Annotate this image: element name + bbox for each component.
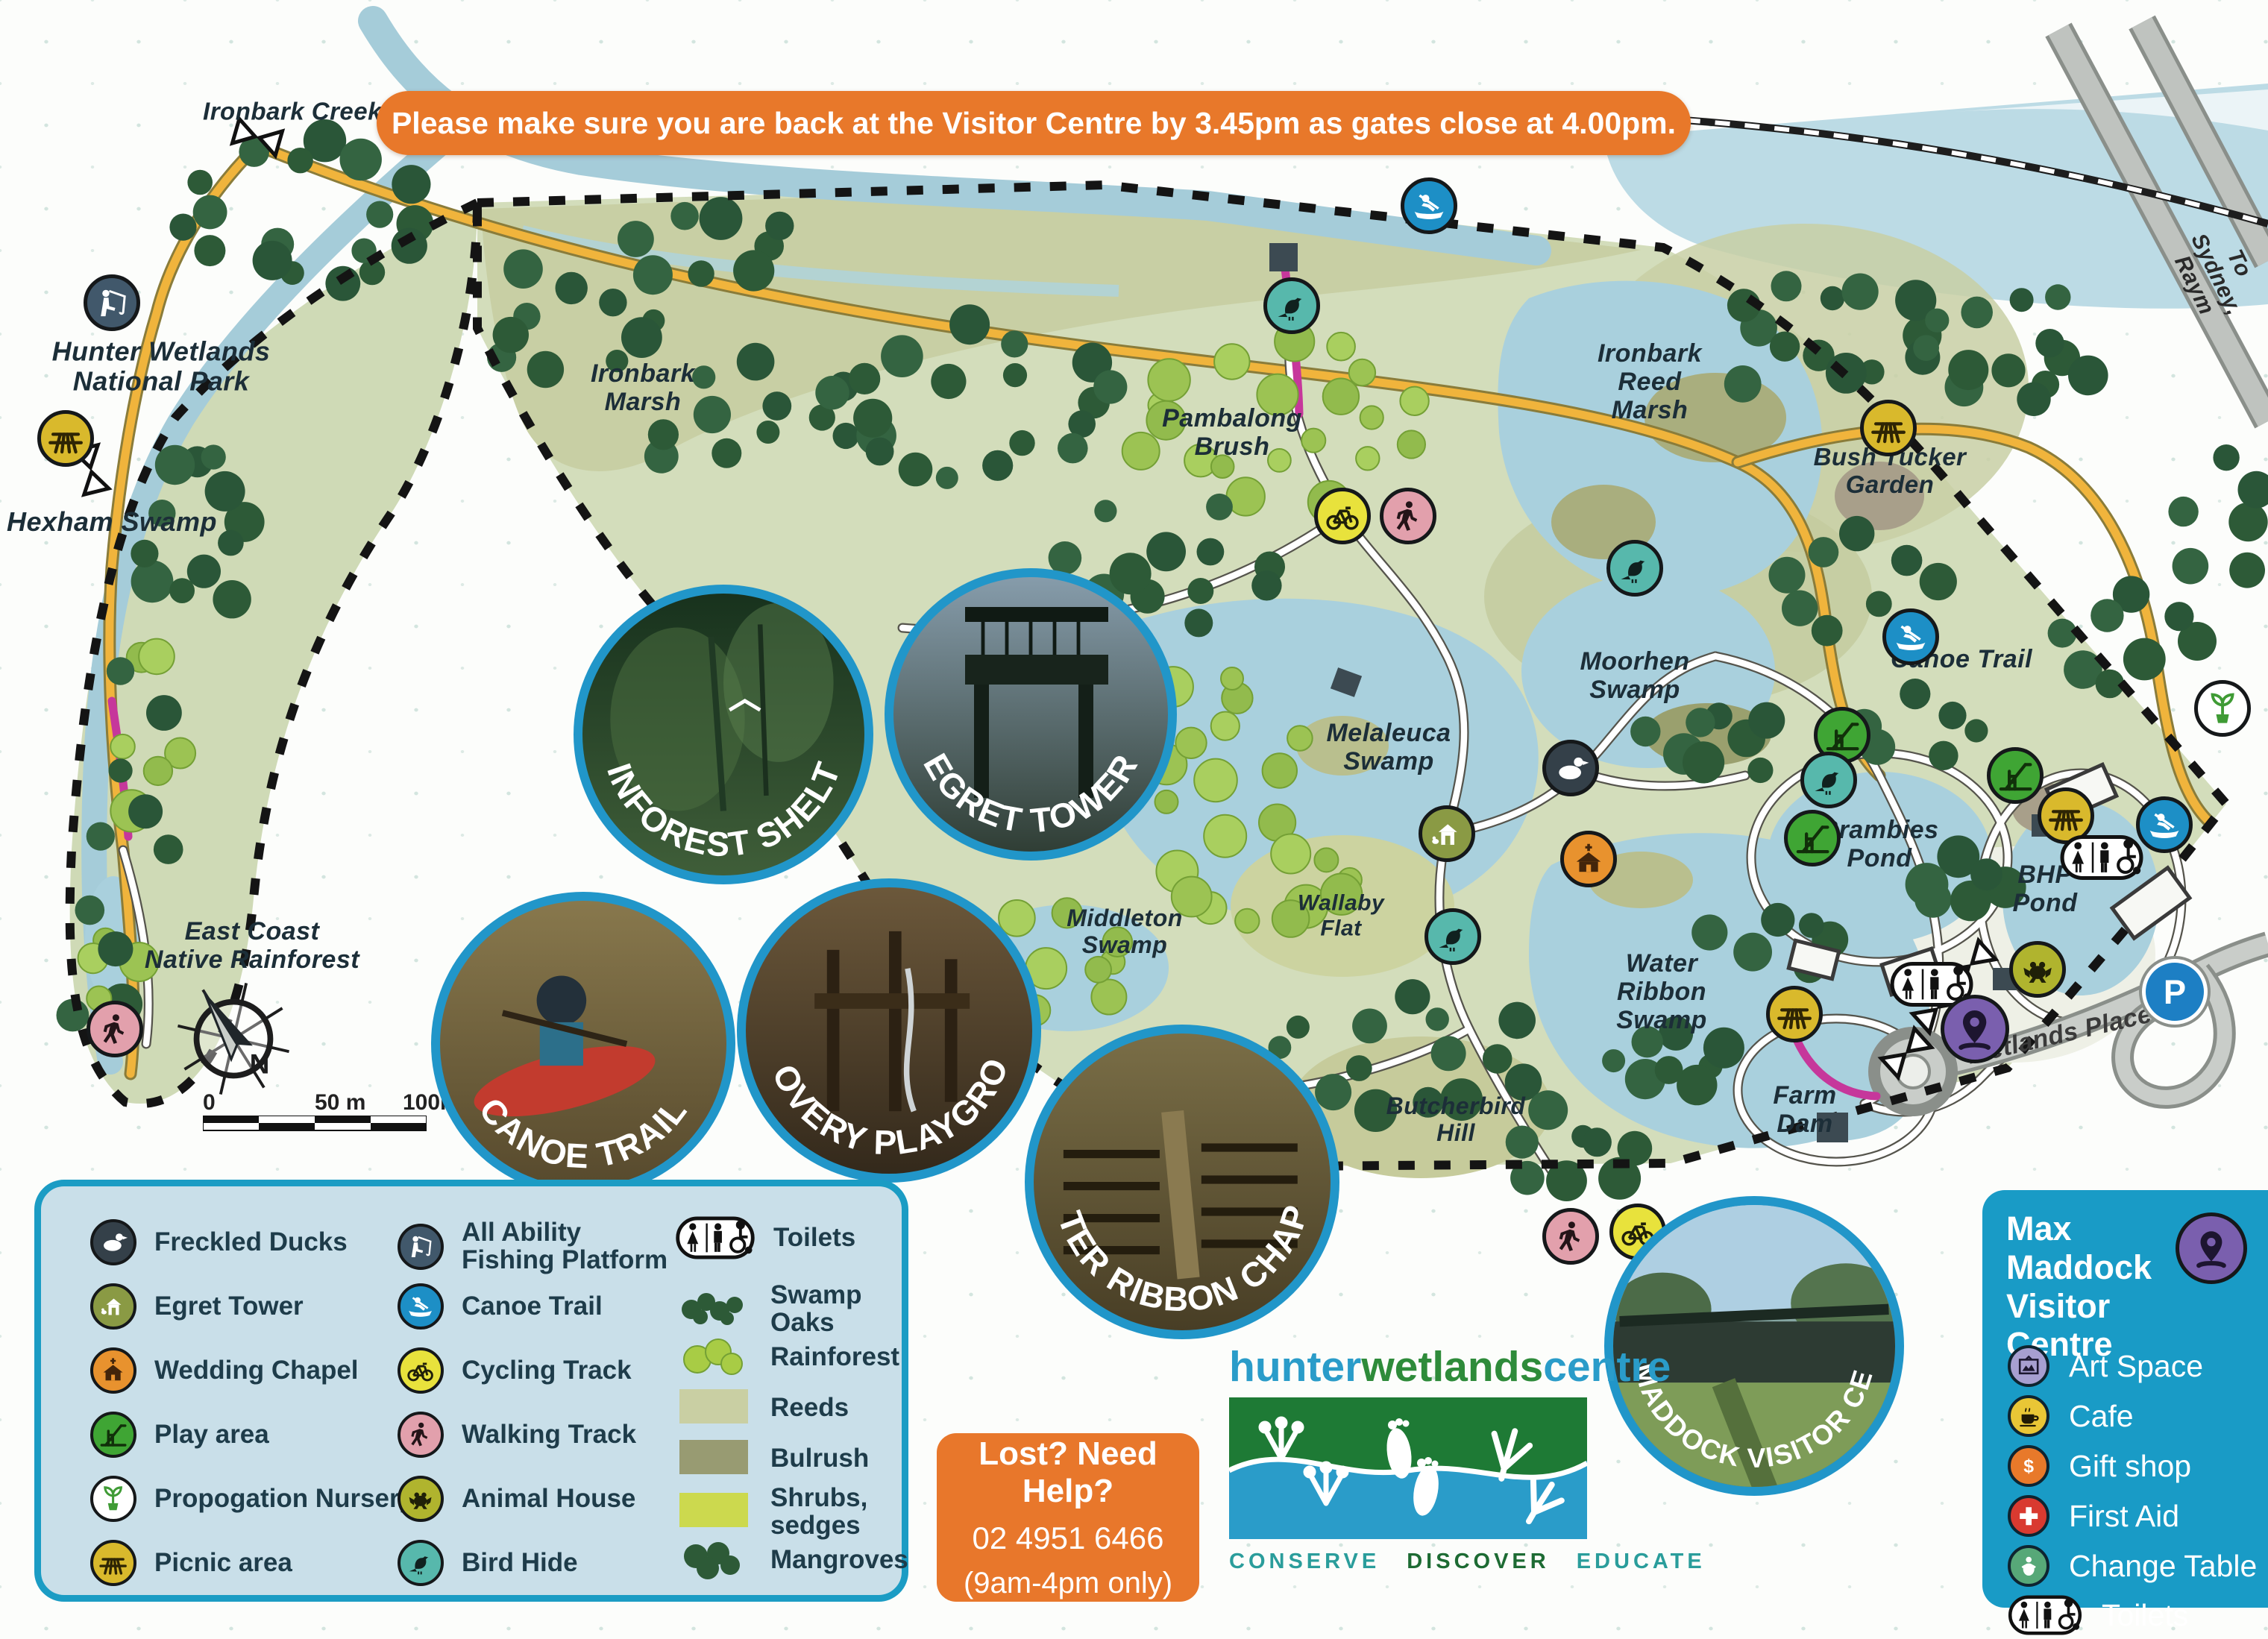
cycling-icon	[1314, 488, 1371, 544]
toilets-icon	[2008, 1595, 2082, 1635]
help-phone: 02 4951 6466	[937, 1520, 1199, 1556]
duck-icon	[90, 1219, 136, 1265]
legend-item-label: Canoe Trail	[462, 1293, 603, 1321]
legend-item-label: Toilets	[773, 1224, 855, 1252]
animal-icon	[2009, 941, 2066, 998]
butcherbird-hill-label: Butcherbird Hill	[1386, 1093, 1526, 1147]
visitor-panel-item: $Gift shop	[2008, 1445, 2191, 1487]
scale-zero: 0	[203, 1090, 216, 1116]
legend-item-label: Egret Tower	[154, 1293, 304, 1321]
canoe-icon	[1882, 608, 1939, 665]
play-icon	[1784, 810, 1841, 866]
bird-icon	[1800, 752, 1857, 808]
bird-icon	[1424, 908, 1481, 965]
legend-item-label: Bulrush	[770, 1445, 869, 1473]
egret-icon	[1419, 805, 1475, 862]
legend-item: Propogation Nursery	[90, 1476, 414, 1522]
visitor-panel-item-label: First Aid	[2069, 1499, 2179, 1534]
legend-item: Egret Tower	[90, 1283, 304, 1330]
rainforest-swatch	[675, 1333, 753, 1382]
visitor-panel-item: Change Table	[2008, 1545, 2257, 1587]
middleton-swamp-label: Middleton Swamp	[1067, 905, 1183, 959]
baby-icon	[2008, 1545, 2049, 1587]
canoe-icon	[1401, 177, 1457, 234]
scale-bar: 0 50 m 100m	[203, 1090, 442, 1142]
nursery-icon	[2194, 680, 2251, 737]
animal-icon	[398, 1476, 444, 1522]
bulrush-swatch	[675, 1434, 753, 1484]
svg-text:$: $	[2023, 1456, 2034, 1476]
legend-item-label: Play area	[154, 1421, 269, 1449]
legend-item-label: Cycling Track	[462, 1357, 632, 1385]
location-pin-icon	[2176, 1212, 2247, 1284]
picnic-icon	[1766, 986, 1823, 1042]
toilets-icon	[2060, 834, 2143, 881]
water-ribbon-swamp-label: Water Ribbon Swamp	[1616, 949, 1707, 1034]
hunter-wetlands-national-park-label: Hunter Wetlands National Park	[52, 337, 271, 397]
legend-item-label: Bird Hide	[462, 1550, 578, 1577]
legend-item-label: Swamp Oaks	[770, 1282, 902, 1337]
egret-tower-photo: EGRET TOWER	[882, 565, 1180, 867]
help-title: Lost? Need Help?	[937, 1435, 1199, 1510]
play-icon	[90, 1412, 136, 1458]
swamp-oaks-swatch	[675, 1284, 753, 1334]
legend-item: Animal House	[398, 1476, 635, 1522]
legend-item-label: Walking Track	[462, 1421, 636, 1449]
legend-veg-item: Mangroves	[675, 1535, 908, 1585]
legend-item: Picnic area	[90, 1540, 292, 1586]
legend-item-label: Animal House	[462, 1485, 635, 1513]
legend-item: Bird Hide	[398, 1540, 578, 1586]
play-icon	[1987, 747, 2044, 804]
visitor-panel-item-label: Change Table	[2069, 1549, 2257, 1584]
east-coast-native-rainforest-label: East Coast Native Rainforest	[145, 917, 359, 974]
coffee-icon	[2008, 1395, 2049, 1437]
walking-icon	[398, 1412, 444, 1458]
toilets-icon	[675, 1216, 756, 1259]
visitor-panel-item: Toilets	[2008, 1595, 2188, 1635]
legend-item-label: All Ability Fishing Platform	[462, 1219, 667, 1274]
legend-veg-item: Bulrush	[675, 1434, 869, 1484]
legend-veg-item: Shrubs, sedges	[675, 1485, 902, 1540]
chapel-icon	[90, 1347, 136, 1394]
bird-icon	[398, 1540, 444, 1586]
legend-veg-item: Rainforest	[675, 1333, 899, 1382]
legend-item: Walking Track	[398, 1412, 636, 1458]
firstaid-icon	[2008, 1495, 2049, 1537]
legend-item-label: Shrubs, sedges	[770, 1485, 902, 1540]
shrubs-sedges-swatch	[675, 1487, 753, 1537]
bird-icon	[1263, 277, 1320, 334]
legend-item-label: Wedding Chapel	[154, 1357, 359, 1385]
picnic-icon	[37, 410, 94, 467]
legend-item-label: Propogation Nursery	[154, 1485, 414, 1513]
notice-banner-text: Please make sure you are back at the Vis…	[392, 106, 1676, 141]
legend-item-label: Picnic area	[154, 1550, 292, 1577]
ironbark-marsh-label: Ironbark Marsh	[591, 359, 695, 416]
legend-item-label: Mangroves	[770, 1547, 908, 1574]
visitor-panel-item-label: Gift shop	[2069, 1449, 2191, 1484]
notice-banner: Please make sure you are back at the Vis…	[377, 91, 1691, 155]
visitor-panel-item-label: Toilets	[2102, 1598, 2188, 1633]
fishing-icon	[398, 1224, 444, 1270]
fishing-icon	[84, 274, 140, 331]
picnic-icon	[1860, 400, 1917, 456]
walking-icon	[87, 1001, 143, 1057]
legend-item: All Ability Fishing Platform	[398, 1219, 667, 1274]
farm-dam-label: Farm Dam	[1773, 1081, 1836, 1138]
visitor-panel-item: Art Space	[2008, 1345, 2203, 1387]
svg-text:P: P	[2164, 973, 2186, 1011]
legend-item: Canoe Trail	[398, 1283, 603, 1330]
logo-tagline: CONSERVEDISCOVEREDUCATE	[1229, 1550, 1632, 1574]
legend-veg-item: Swamp Oaks	[675, 1282, 902, 1337]
scanned-park-map: Please make sure you are back at the Vis…	[0, 0, 2268, 1611]
discovery-playground-photo: DISCOVERY PLAYGROUND	[734, 875, 1044, 1189]
art-icon	[2008, 1345, 2049, 1387]
hexham-swamp-label: Hexham Swamp	[7, 507, 217, 537]
logo-footprints-image	[1229, 1397, 1587, 1539]
visitor-panel-item-label: Art Space	[2069, 1349, 2203, 1384]
visitor-panel-item: Cafe	[2008, 1395, 2134, 1437]
visitor-centre-panel: Max Maddock Visitor Centre Art SpaceCafe…	[1982, 1190, 2268, 1608]
legend-item: Play area	[90, 1412, 269, 1458]
legend-panel: Freckled DucksEgret TowerWedding ChapelP…	[34, 1180, 908, 1602]
help-hours: (9am-4pm only)	[937, 1567, 1199, 1600]
dollar-icon: $	[2008, 1445, 2049, 1487]
bird-icon	[1606, 540, 1663, 597]
pambalong-brush-label: Pambalong Brush	[1162, 404, 1302, 461]
nursery-icon	[90, 1476, 136, 1522]
picnic-icon	[90, 1540, 136, 1586]
pin-icon	[1941, 995, 2009, 1063]
canoe-icon	[2136, 796, 2193, 853]
legend-item: Cycling Track	[398, 1347, 632, 1394]
walking-icon	[1542, 1208, 1599, 1265]
reeds-swatch	[675, 1383, 753, 1433]
water-ribbon-chapel-photo: WATER RIBBON CHAPEL	[1022, 1022, 1342, 1346]
legend-item: Freckled Ducks	[90, 1219, 348, 1265]
visitor-panel-item: First Aid	[2008, 1495, 2179, 1537]
help-box: Lost? Need Help? 02 4951 6466 (9am-4pm o…	[937, 1433, 1199, 1602]
canoe-trail-photo: CANOE TRAIL	[428, 889, 738, 1203]
moorhen-swamp-label: Moorhen Swamp	[1580, 647, 1689, 704]
legend-item-label: Rainforest	[770, 1344, 899, 1371]
melaleuca-swamp-label: Melaleuca Swamp	[1326, 719, 1451, 776]
legend-item-label: Freckled Ducks	[154, 1229, 348, 1256]
chapel-icon	[1560, 831, 1617, 887]
ironbark-creek-label: Ironbark Creek	[203, 98, 382, 126]
canoe-icon	[398, 1283, 444, 1330]
ironbark-reed-marsh-label: Ironbark Reed Marsh	[1598, 339, 1702, 424]
hunter-wetlands-logo: hunterwetlandscentre	[1229, 1342, 1632, 1574]
legend-veg-item: Reeds	[675, 1383, 849, 1433]
legend-item: Wedding Chapel	[90, 1347, 359, 1394]
egret-icon	[90, 1283, 136, 1330]
cycling-icon	[398, 1347, 444, 1394]
scale-fifty: 50 m	[315, 1090, 365, 1116]
compass-north-letter: N	[250, 1048, 270, 1079]
logo-wordmark: hunterwetlandscentre	[1229, 1342, 1632, 1391]
legend-item: Toilets	[675, 1216, 855, 1259]
legend-item-label: Reeds	[770, 1394, 849, 1422]
visitor-panel-item-label: Cafe	[2069, 1399, 2134, 1434]
mangroves-swatch	[675, 1535, 753, 1585]
rainforest-shelter-photo: RAINFOREST SHELTER	[571, 582, 876, 891]
compass-rose: N	[170, 975, 297, 1102]
wallaby-flat-label: Wallaby Flat	[1298, 890, 1384, 940]
parking-icon: P	[2142, 959, 2208, 1025]
walking-icon	[1380, 488, 1436, 544]
visitor-panel-title: Max Maddock Visitor Centre	[2006, 1209, 2193, 1364]
duck-icon	[1542, 740, 1599, 796]
